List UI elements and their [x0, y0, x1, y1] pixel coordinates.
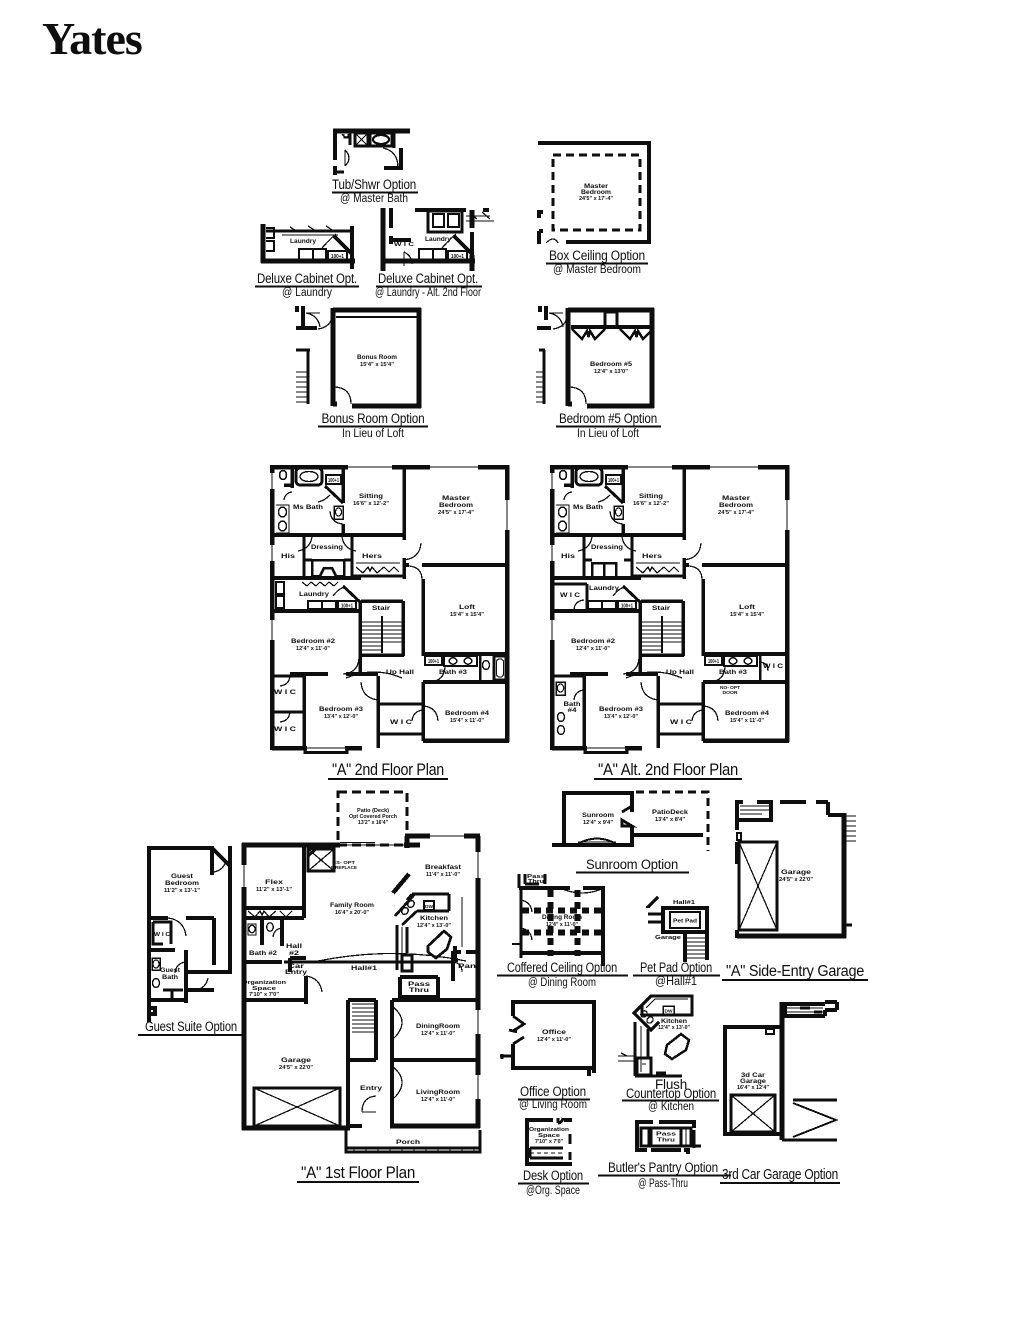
svg-text:Bedroom #2: Bedroom #2 [291, 638, 335, 645]
svg-text:@ Dining Room: @ Dining Room [528, 977, 596, 989]
svg-text:Dressing: Dressing [311, 544, 343, 551]
svg-text:W I C: W I C [154, 932, 170, 938]
svg-text:@ Kitchen: @ Kitchen [648, 1101, 694, 1113]
svg-text:13'4" x 12'-0": 13'4" x 12'-0" [324, 714, 359, 720]
svg-text:Desk Option: Desk Option [523, 1168, 583, 1183]
svg-text:15'4" x 11'-0": 15'4" x 11'-0" [450, 718, 485, 724]
svg-text:@Hall#1: @Hall#1 [655, 976, 697, 988]
svg-text:Bedroom #4: Bedroom #4 [445, 710, 489, 717]
svg-text:Up Hall: Up Hall [666, 669, 694, 676]
svg-text:Sitting: Sitting [639, 493, 663, 500]
svg-text:His: His [561, 553, 576, 560]
svg-text:Porch: Porch [396, 1140, 420, 1146]
svg-text:#4: #4 [568, 708, 578, 714]
svg-text:Countertop Option: Countertop Option [626, 1086, 716, 1101]
svg-text:100+1: 100+1 [328, 478, 339, 484]
svg-text:Bedroom #5: Bedroom #5 [590, 361, 632, 368]
svg-text:12'4" x 13'0": 12'4" x 13'0" [594, 369, 629, 375]
svg-text:24'5" x 17'-4": 24'5" x 17'-4" [438, 510, 475, 516]
svg-text:Up Hall: Up Hall [386, 669, 414, 676]
svg-text:"A" 2nd Floor Plan: "A" 2nd Floor Plan [332, 761, 444, 779]
svg-text:PatioDeck: PatioDeck [652, 809, 688, 816]
svg-text:"A" Alt. 2nd Floor Plan: "A" Alt. 2nd Floor Plan [598, 761, 738, 779]
svg-text:@ Master Bath: @ Master Bath [340, 193, 408, 205]
svg-text:Deluxe Cabinet Opt.: Deluxe Cabinet Opt. [257, 271, 357, 286]
svg-text:Kitchen: Kitchen [420, 915, 448, 922]
svg-text:7'10" x 7'0": 7'10" x 7'0" [249, 992, 280, 998]
svg-text:Sunroom: Sunroom [582, 812, 614, 819]
svg-text:Yates: Yates [42, 13, 142, 64]
svg-text:Laundry: Laundry [299, 591, 329, 598]
svg-text:12'4" x 11'-0": 12'4" x 11'-0" [537, 1037, 572, 1043]
svg-text:Entry: Entry [285, 970, 308, 976]
svg-text:11'2" x 13'-1": 11'2" x 13'-1" [164, 888, 201, 894]
svg-text:12'4" x 9'4": 12'4" x 9'4" [583, 820, 614, 826]
svg-text:W I C: W I C [274, 690, 297, 696]
svg-text:12'4" x 11'-0": 12'4" x 11'-0" [546, 922, 579, 928]
svg-text:Pan: Pan [458, 963, 476, 970]
svg-text:Deluxe Cabinet Opt.: Deluxe Cabinet Opt. [378, 271, 478, 286]
svg-text:Hall: Hall [286, 943, 302, 950]
svg-text:Butler's Pantry Option: Butler's Pantry Option [608, 1160, 718, 1175]
svg-text:Thru: Thru [528, 879, 544, 885]
svg-text:12'4" x 11'-0": 12'4" x 11'-0" [296, 646, 331, 652]
svg-text:Ms Bath: Ms Bath [293, 504, 323, 511]
svg-text:LivingRoom: LivingRoom [416, 1089, 460, 1096]
svg-text:Thru: Thru [657, 1138, 675, 1144]
svg-text:Laundry: Laundry [589, 585, 619, 592]
svg-text:Stair: Stair [652, 605, 671, 612]
svg-text:Thru: Thru [409, 988, 429, 994]
svg-text:Bonus Room Option: Bonus Room Option [322, 411, 425, 426]
svg-text:Bedroom: Bedroom [439, 502, 473, 509]
svg-text:12'4" x 13'-0": 12'4" x 13'-0" [658, 1025, 691, 1031]
svg-text:24'5" x 22'0": 24'5" x 22'0" [779, 877, 814, 883]
svg-text:Bath: Bath [162, 974, 178, 981]
svg-text:His: His [281, 553, 296, 560]
svg-text:Sitting: Sitting [359, 493, 383, 500]
svg-text:W I C: W I C [670, 720, 693, 726]
svg-text:@ Laundry: @ Laundry [282, 287, 332, 299]
svg-text:15'4" x 15'4": 15'4" x 15'4" [450, 612, 485, 618]
svg-text:Hall#1: Hall#1 [351, 965, 378, 972]
svg-text:24'5" x 17'-4": 24'5" x 17'-4" [718, 510, 755, 516]
svg-text:13'4" x 12'-0": 13'4" x 12'-0" [604, 714, 639, 720]
svg-text:Bedroom: Bedroom [719, 502, 753, 509]
svg-text:In Lieu of Loft: In Lieu of Loft [342, 428, 405, 440]
svg-text:11'4" x 11'-0": 11'4" x 11'-0" [426, 872, 461, 878]
svg-text:@Org. Space: @Org. Space [526, 1185, 580, 1197]
svg-text:Bedroom #3: Bedroom #3 [599, 706, 643, 713]
svg-text:@ Laundry - Alt. 2nd Floor: @ Laundry - Alt. 2nd Floor [375, 287, 481, 299]
svg-text:DW: DW [425, 904, 434, 909]
svg-text:13'4" x 8'4": 13'4" x 8'4" [655, 817, 686, 823]
svg-text:16'4" x 20'-0": 16'4" x 20'-0" [335, 910, 370, 916]
svg-text:100+1: 100+1 [708, 659, 719, 665]
svg-text:Loft: Loft [459, 604, 476, 611]
svg-text:Garage: Garage [655, 935, 681, 941]
svg-text:Bedroom #5 Option: Bedroom #5 Option [559, 411, 657, 426]
svg-text:100+1: 100+1 [331, 254, 344, 260]
svg-text:Dressing: Dressing [591, 544, 623, 551]
svg-text:15'4" x 15'4": 15'4" x 15'4" [360, 362, 395, 368]
svg-text:100+1: 100+1 [608, 478, 619, 484]
svg-text:Guest Suite Option: Guest Suite Option [145, 1019, 237, 1034]
svg-text:Bedroom #4: Bedroom #4 [725, 710, 769, 717]
svg-text:100+1: 100+1 [451, 254, 464, 260]
svg-text:W I C: W I C [560, 593, 581, 599]
svg-text:100+1: 100+1 [428, 659, 439, 665]
svg-text:In Lieu of Loft: In Lieu of Loft [577, 428, 640, 440]
svg-text:24'5" x 22'0": 24'5" x 22'0" [279, 1065, 314, 1071]
svg-text:@ Pass-Thru: @ Pass-Thru [638, 1178, 688, 1190]
svg-text:24'5" x 17'-4": 24'5" x 17'-4" [579, 196, 614, 202]
svg-text:@ Living Room: @ Living Room [519, 1099, 587, 1111]
svg-text:Office Option: Office Option [520, 1084, 586, 1099]
svg-text:Flex: Flex [265, 879, 284, 886]
svg-text:Family Room: Family Room [330, 902, 374, 909]
svg-text:Guest: Guest [160, 967, 181, 974]
svg-text:Garage: Garage [781, 869, 812, 876]
svg-text:Ms Bath: Ms Bath [573, 504, 603, 511]
svg-text:Hers: Hers [642, 553, 663, 560]
svg-text:Breakfast: Breakfast [425, 864, 462, 871]
svg-text:16'6" x 12'-2": 16'6" x 12'-2" [633, 501, 670, 507]
svg-text:7'10" x 7'0": 7'10" x 7'0" [535, 1139, 564, 1145]
svg-text:Dining Room: Dining Room [542, 915, 582, 921]
svg-text:Pet Pad Option: Pet Pad Option [640, 960, 712, 975]
svg-text:Coffered Ceiling Option: Coffered Ceiling Option [507, 960, 617, 975]
svg-text:100+1: 100+1 [341, 604, 353, 610]
svg-text:12'4" x 11'-0": 12'4" x 11'-0" [576, 646, 611, 652]
svg-text:15'4" x 15'4": 15'4" x 15'4" [730, 612, 765, 618]
svg-text:Guest: Guest [171, 873, 194, 880]
svg-text:"A" 1st Floor Plan: "A" 1st Floor Plan [301, 1164, 415, 1182]
svg-text:13'2" x 16'4": 13'2" x 16'4" [358, 820, 389, 826]
svg-text:100+1: 100+1 [621, 604, 633, 610]
svg-text:W I C: W I C [394, 242, 414, 248]
svg-text:Stair: Stair [372, 605, 391, 612]
svg-text:#2: #2 [289, 950, 300, 957]
svg-text:Bedroom #2: Bedroom #2 [571, 638, 615, 645]
svg-text:16'4" x 12'4": 16'4" x 12'4" [737, 1085, 770, 1091]
svg-text:Bedroom #3: Bedroom #3 [319, 706, 363, 713]
svg-text:15'4" x 11'-0": 15'4" x 11'-0" [730, 718, 765, 724]
svg-text:Hall#1: Hall#1 [673, 900, 695, 906]
svg-text:DOOR: DOOR [723, 690, 739, 695]
svg-text:12'4" x 13'-0": 12'4" x 13'-0" [417, 923, 452, 929]
svg-text:Box Ceiling Option: Box Ceiling Option [549, 248, 645, 263]
svg-text:@ Master Bedroom: @ Master Bedroom [553, 264, 641, 276]
svg-text:DW: DW [665, 1009, 674, 1014]
svg-text:Bedroom: Bedroom [165, 880, 199, 887]
svg-text:DiningRoom: DiningRoom [416, 1023, 460, 1030]
svg-text:16'6" x 12'-2": 16'6" x 12'-2" [353, 501, 390, 507]
svg-text:Office: Office [542, 1029, 567, 1036]
svg-text:Sunroom Option: Sunroom Option [586, 857, 678, 872]
svg-text:12'4" x 11'-0": 12'4" x 11'-0" [421, 1031, 456, 1037]
svg-text:Hers: Hers [362, 553, 383, 560]
svg-text:Entry: Entry [360, 1086, 383, 1092]
svg-text:Garage: Garage [281, 1057, 312, 1064]
svg-text:FIREPLACE: FIREPLACE [331, 865, 357, 870]
svg-text:W I C: W I C [274, 727, 297, 733]
svg-text:Master: Master [442, 495, 471, 502]
svg-text:3rd Car Garage Option: 3rd Car Garage Option [722, 1166, 838, 1183]
svg-text:Pet Pad: Pet Pad [673, 919, 697, 925]
svg-text:Bonus Room: Bonus Room [357, 354, 397, 361]
svg-text:11'2" x 13'-1": 11'2" x 13'-1" [256, 887, 293, 893]
svg-text:Master: Master [722, 495, 751, 502]
svg-text:W I C: W I C [390, 720, 413, 726]
svg-text:Tub/Shwr Option: Tub/Shwr Option [332, 177, 416, 192]
svg-text:"A" Side-Entry Garage: "A" Side-Entry Garage [726, 963, 864, 980]
svg-text:Laundry: Laundry [290, 239, 317, 245]
svg-text:Bath #2: Bath #2 [249, 950, 277, 957]
svg-text:12'4" x 11'-0": 12'4" x 11'-0" [421, 1097, 456, 1103]
svg-text:Loft: Loft [739, 604, 756, 611]
